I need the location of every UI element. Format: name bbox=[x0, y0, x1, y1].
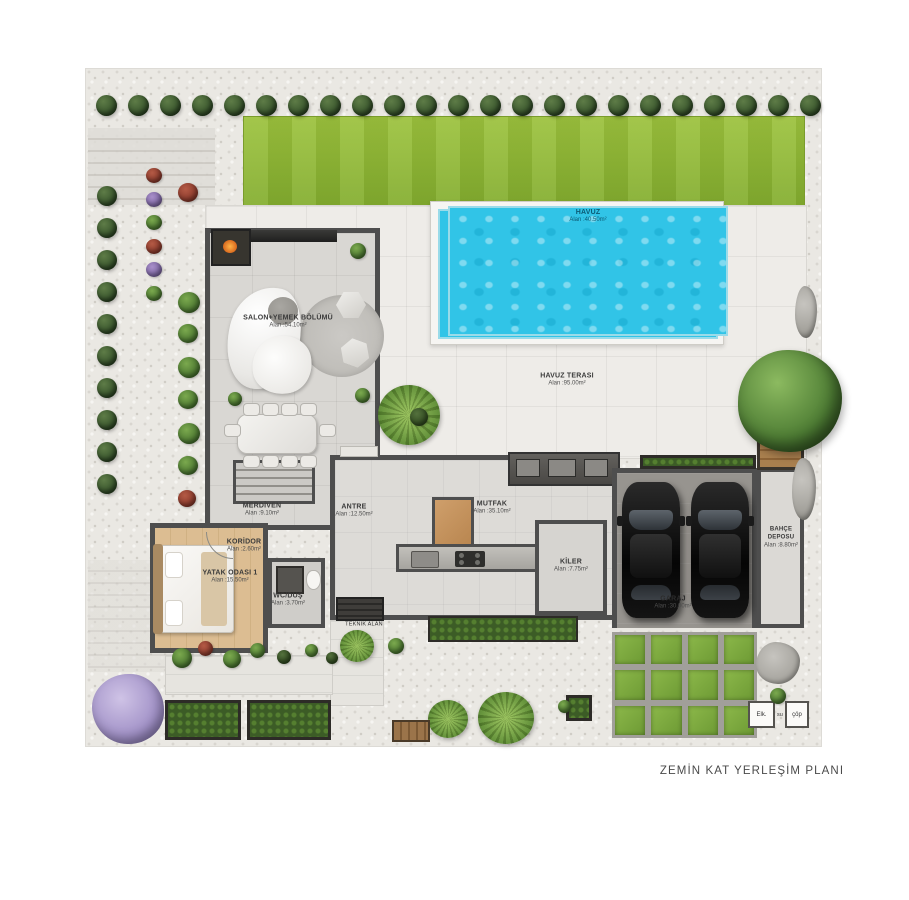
headboard bbox=[153, 544, 163, 634]
tree-icon bbox=[160, 95, 181, 116]
tree-icon bbox=[97, 282, 117, 302]
tree-icon bbox=[768, 95, 789, 116]
grass-paver-cell bbox=[615, 670, 645, 699]
shrub-icon bbox=[146, 286, 162, 301]
tree-icon bbox=[448, 95, 469, 116]
bed-throw bbox=[201, 552, 227, 626]
shrub-icon bbox=[178, 423, 200, 444]
dining-chair bbox=[300, 455, 317, 468]
shrub-icon bbox=[178, 292, 200, 313]
dining-chair bbox=[281, 403, 298, 416]
shrub-icon bbox=[146, 192, 162, 207]
tree-icon bbox=[544, 95, 565, 116]
dining-chair bbox=[319, 424, 336, 437]
tree-icon bbox=[704, 95, 725, 116]
tree-icon bbox=[288, 95, 309, 116]
tree-icon bbox=[97, 250, 117, 270]
utility-electric-box: Elk. bbox=[748, 701, 775, 728]
wood-planter bbox=[392, 720, 430, 742]
shrub-icon bbox=[146, 262, 162, 277]
dining-table bbox=[237, 414, 317, 454]
fern-plant bbox=[428, 700, 468, 738]
shrub-icon bbox=[178, 183, 198, 202]
tree-icon bbox=[96, 95, 117, 116]
tree-icon bbox=[384, 95, 405, 116]
label-corridor: KORİDORAlan :2.60m² bbox=[227, 538, 261, 555]
tree-icon bbox=[640, 95, 661, 116]
tree-icon bbox=[672, 95, 693, 116]
shrub-icon bbox=[146, 168, 162, 183]
bed bbox=[154, 545, 234, 633]
grass-paver-cell bbox=[615, 635, 645, 664]
dining-chair bbox=[243, 403, 260, 416]
entry-step bbox=[340, 446, 378, 457]
tree-icon bbox=[320, 95, 341, 116]
kitchen-counter bbox=[396, 544, 546, 572]
sink bbox=[411, 551, 439, 568]
label-hall: ANTREAlan :12.50m² bbox=[335, 503, 372, 520]
label-pool-terrace: HAVUZ TERASIAlan :95.00m² bbox=[540, 372, 594, 389]
shrub-icon bbox=[223, 650, 241, 668]
grass-paver-cell bbox=[651, 706, 681, 735]
label-wc: WC/DUŞAlan :3.70m² bbox=[271, 592, 305, 609]
grass-paver-cell bbox=[688, 670, 718, 699]
tree-icon bbox=[97, 474, 117, 494]
car bbox=[691, 482, 749, 618]
label-technical: TEKNİK ALAN bbox=[345, 621, 383, 628]
utility-water-label: su bbox=[777, 712, 783, 718]
tree-icon bbox=[576, 95, 597, 116]
label-pool: HAVUZAlan :40.50m² bbox=[448, 206, 728, 336]
label-bedroom: YATAK ODASI 1Alan :15.50m² bbox=[203, 569, 258, 586]
shrub-icon bbox=[355, 388, 370, 403]
grass-paver-cell bbox=[688, 706, 718, 735]
shrub-icon bbox=[178, 490, 196, 507]
tree-icon bbox=[97, 186, 117, 206]
shrub-icon bbox=[277, 650, 291, 664]
plan-title: ZEMİN KAT YERLEŞİM PLANI bbox=[642, 765, 862, 777]
site-plan: HAVUZAlan :40.50m² HAVUZ TERASIAlan :95.… bbox=[0, 0, 909, 900]
shrub-icon bbox=[228, 392, 242, 406]
kitchen-sink bbox=[548, 459, 576, 477]
shrub-icon bbox=[178, 390, 198, 409]
tree-icon bbox=[256, 95, 277, 116]
tree-icon bbox=[416, 95, 437, 116]
tree-icon bbox=[97, 442, 117, 462]
tree-icon bbox=[97, 218, 117, 238]
garage-hedge bbox=[640, 455, 756, 469]
shrub-icon bbox=[178, 324, 198, 343]
technical-cabinet bbox=[336, 597, 384, 621]
tree-icon bbox=[352, 95, 373, 116]
shrub-icon bbox=[146, 215, 162, 230]
dining-chair bbox=[300, 403, 317, 416]
pillow bbox=[165, 600, 183, 626]
label-pantry: KİLERAlan :7.75m² bbox=[554, 558, 588, 575]
tree-icon bbox=[128, 95, 149, 116]
purple-tree bbox=[92, 674, 164, 744]
lawn bbox=[243, 116, 805, 208]
shrub-icon bbox=[172, 648, 192, 668]
fireplace bbox=[211, 229, 251, 266]
planter-hedge bbox=[165, 700, 241, 740]
large-tree bbox=[738, 350, 842, 452]
cooktop bbox=[455, 551, 485, 567]
dining-chair bbox=[243, 455, 260, 468]
tree-icon bbox=[97, 314, 117, 334]
dining-chair bbox=[262, 455, 279, 468]
shrub-icon bbox=[178, 357, 200, 378]
tree-icon bbox=[736, 95, 757, 116]
shower bbox=[276, 566, 304, 594]
label-kitchen: MUTFAKAlan :35.10m² bbox=[473, 500, 510, 517]
dining-chair bbox=[224, 424, 241, 437]
shrub-icon bbox=[770, 688, 786, 704]
shrub-icon bbox=[305, 644, 318, 657]
fire-icon bbox=[223, 240, 237, 253]
toilet bbox=[306, 570, 321, 590]
kitchen-wall-counter bbox=[508, 452, 620, 486]
grass-paver-cell bbox=[651, 635, 681, 664]
tree-icon bbox=[97, 378, 117, 398]
grass-pavers-driveway bbox=[612, 632, 757, 738]
shrub-icon bbox=[250, 643, 265, 658]
dining-chair bbox=[281, 455, 298, 468]
label-garden-storage: BAHÇE DEPOSUAlan :8.80m² bbox=[758, 526, 804, 549]
palm-plant bbox=[378, 385, 440, 445]
label-stairs: MERDİVENAlan :9.10m² bbox=[243, 502, 282, 519]
shrub-icon bbox=[558, 700, 571, 713]
tree-icon bbox=[512, 95, 533, 116]
tv-unit bbox=[251, 230, 337, 242]
grass-paver-cell bbox=[651, 670, 681, 699]
grass-paver-cell bbox=[615, 706, 645, 735]
planter-hedge bbox=[247, 700, 331, 740]
shrub-icon bbox=[410, 408, 428, 426]
pillow bbox=[165, 552, 183, 578]
shrub-icon bbox=[146, 239, 162, 254]
fridge bbox=[584, 459, 608, 477]
garden-bed bbox=[428, 616, 578, 642]
shrub-icon bbox=[350, 243, 366, 259]
tree-icon bbox=[97, 410, 117, 430]
shrub-icon bbox=[178, 456, 198, 475]
grass-paver-cell bbox=[724, 670, 754, 699]
label-garage: GARAJAlan :30.00m² bbox=[654, 595, 691, 612]
tree-icon bbox=[97, 346, 117, 366]
utility-trash-box: çöp bbox=[785, 701, 809, 728]
shrub-icon bbox=[198, 641, 213, 656]
oven bbox=[516, 459, 540, 477]
fern-plant bbox=[340, 630, 374, 662]
kitchen-island bbox=[432, 497, 474, 551]
grass-paver-cell bbox=[688, 635, 718, 664]
tree-icon bbox=[224, 95, 245, 116]
palm-plant bbox=[478, 692, 534, 744]
tree-icon bbox=[800, 95, 821, 116]
shrub-icon bbox=[326, 652, 338, 664]
tree-icon bbox=[608, 95, 629, 116]
shrub-icon bbox=[388, 638, 404, 654]
dining-chair bbox=[262, 403, 279, 416]
grass-paver-cell bbox=[724, 635, 754, 664]
tree-icon bbox=[480, 95, 501, 116]
tree-icon bbox=[192, 95, 213, 116]
label-living: SALON+YEMEK BÖLÜMÜAlan :54.10m² bbox=[243, 314, 333, 331]
